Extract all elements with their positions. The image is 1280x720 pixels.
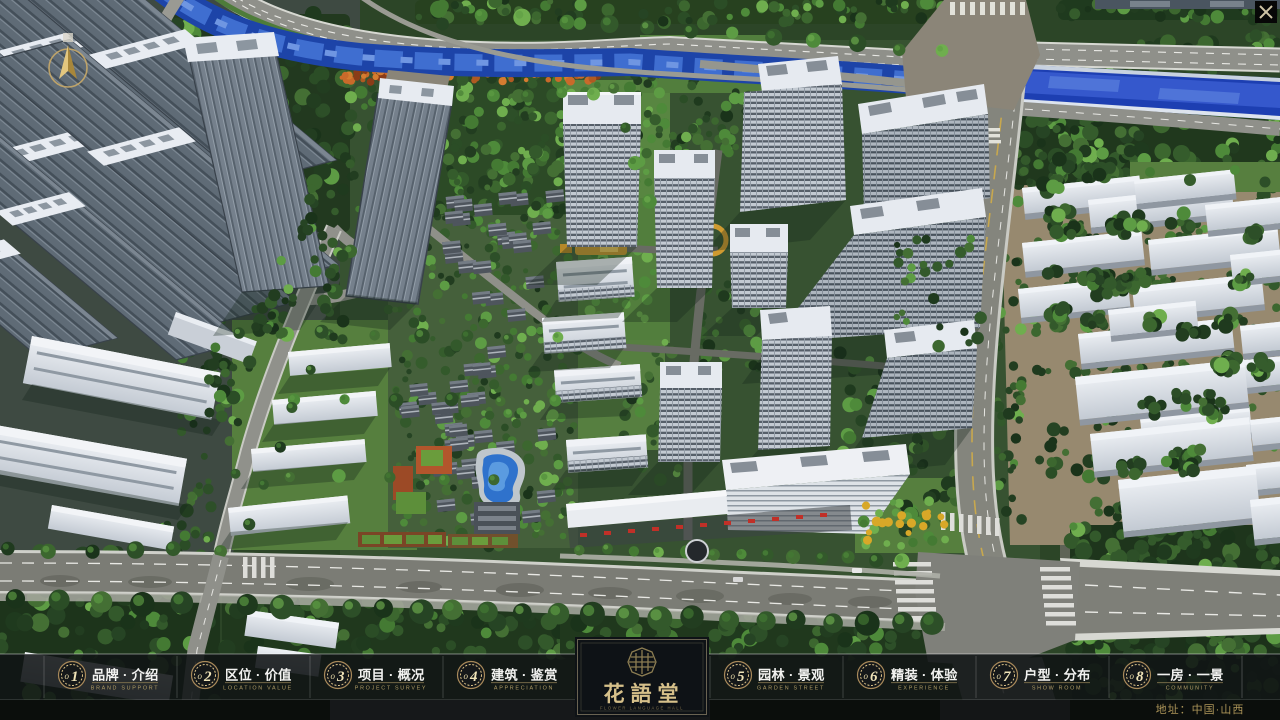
svg-text:项目 · 概况: 项目 · 概况 [358, 667, 425, 683]
svg-text:o: o [731, 671, 736, 681]
svg-text:精装 · 体验: 精装 · 体验 [891, 667, 958, 683]
svg-text:o: o [464, 671, 469, 681]
svg-text:COMMUNITY: COMMUNITY [1166, 686, 1215, 692]
svg-text:o: o [65, 671, 70, 681]
svg-text:GARDEN STREET: GARDEN STREET [757, 686, 825, 692]
svg-text:建筑 · 鉴赏: 建筑 · 鉴赏 [491, 667, 558, 683]
svg-text:一房 · 一景: 一房 · 一景 [1157, 667, 1224, 683]
svg-text:EXPERIENCE: EXPERIENCE [898, 686, 950, 692]
svg-text:5: 5 [737, 669, 745, 685]
svg-text:o: o [1130, 671, 1135, 681]
svg-text:户型 · 分布: 户型 · 分布 [1024, 667, 1091, 683]
svg-text:2: 2 [203, 669, 212, 685]
svg-text:4: 4 [469, 669, 478, 685]
svg-text:o: o [864, 671, 869, 681]
svg-text:花語堂: 花語堂 [604, 682, 685, 706]
svg-text:区位 · 价值: 区位 · 价值 [225, 667, 292, 683]
svg-text:品牌 · 介绍: 品牌 · 介绍 [92, 667, 159, 683]
svg-text:PROJECT SURVEY: PROJECT SURVEY [355, 686, 427, 692]
svg-text:8: 8 [1136, 669, 1144, 685]
svg-text:7: 7 [1003, 669, 1011, 685]
svg-text:园林 · 景观: 园林 · 景观 [758, 667, 825, 683]
svg-text:6: 6 [870, 669, 878, 685]
svg-text:o: o [997, 671, 1002, 681]
svg-text:1: 1 [71, 669, 79, 685]
svg-text:FLOWER LANGUAGE HALL: FLOWER LANGUAGE HALL [600, 706, 684, 711]
svg-text:o: o [331, 671, 336, 681]
svg-text:LOCATION VALUE: LOCATION VALUE [223, 686, 293, 692]
svg-text:BRAND SUPPORT: BRAND SUPPORT [91, 686, 159, 692]
svg-text:地址：中国·山西: 地址：中国·山西 [1156, 702, 1245, 716]
svg-text:SHOW ROOM: SHOW ROOM [1032, 686, 1082, 692]
svg-text:3: 3 [336, 669, 345, 685]
svg-text:APPRECIATION: APPRECIATION [494, 686, 554, 692]
svg-text:o: o [198, 671, 203, 681]
